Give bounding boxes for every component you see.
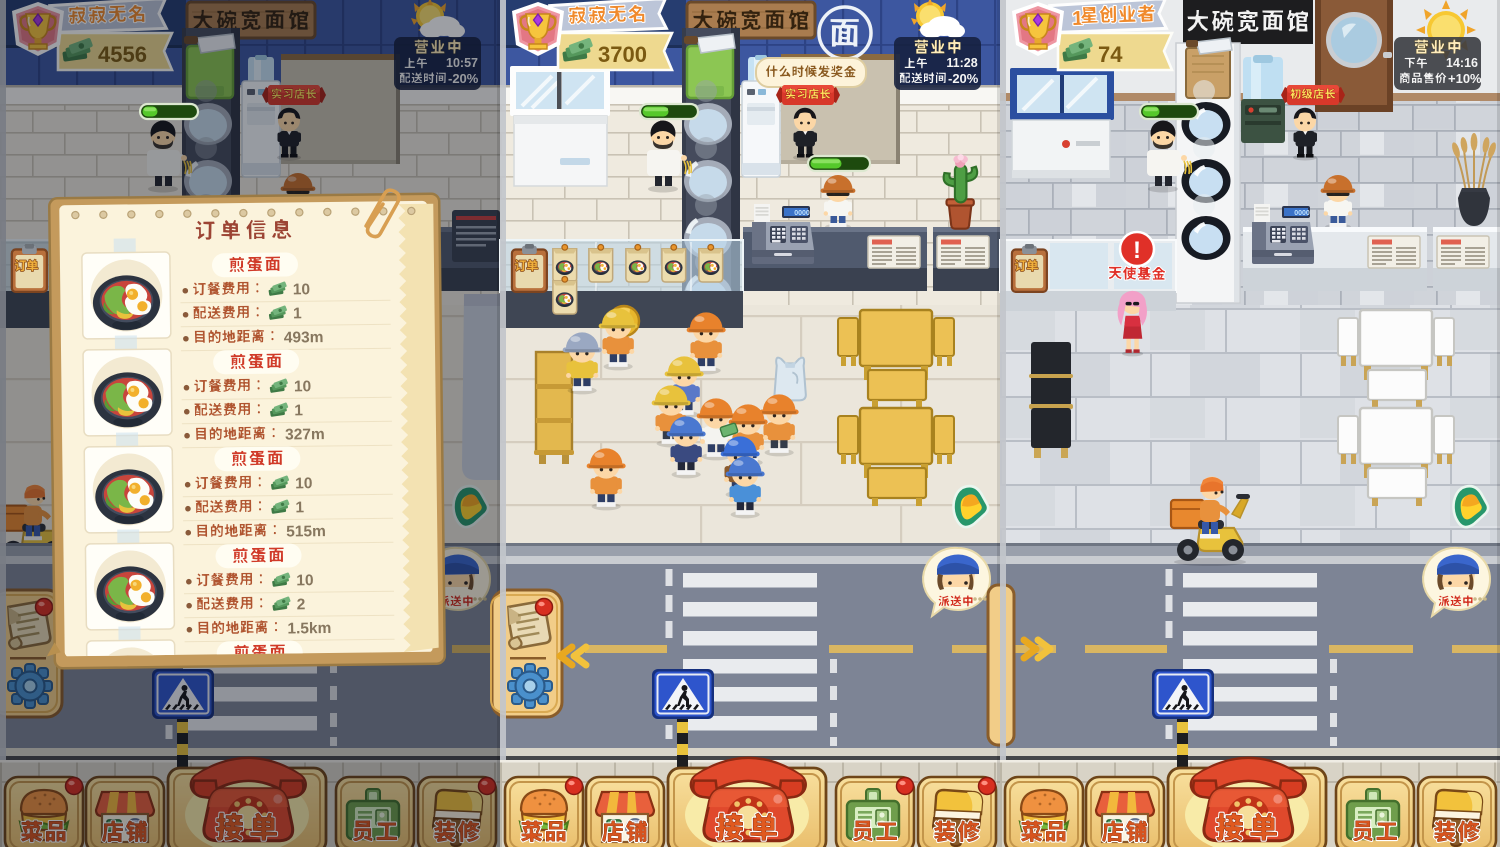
svg-text:10: 10 bbox=[295, 475, 312, 492]
svg-text:3700: 3700 bbox=[598, 42, 647, 67]
svg-text:327m: 327m bbox=[285, 426, 325, 443]
svg-text:1: 1 bbox=[293, 305, 302, 322]
svg-text:74: 74 bbox=[1098, 42, 1123, 67]
svg-text:10: 10 bbox=[296, 572, 313, 589]
svg-text:10: 10 bbox=[293, 281, 310, 298]
svg-text:1: 1 bbox=[294, 402, 303, 419]
svg-text:1.5km: 1.5km bbox=[287, 620, 331, 638]
svg-text:14:16: 14:16 bbox=[1446, 56, 1478, 70]
svg-text:515m: 515m bbox=[286, 523, 326, 540]
svg-text:1: 1 bbox=[295, 499, 304, 516]
svg-text:-20%: -20% bbox=[948, 71, 979, 86]
svg-text:!: ! bbox=[1133, 237, 1141, 264]
svg-text:493m: 493m bbox=[284, 329, 324, 346]
svg-text:+10%: +10% bbox=[1448, 71, 1482, 86]
svg-text:11:28: 11:28 bbox=[946, 56, 977, 70]
svg-text:10: 10 bbox=[294, 378, 311, 395]
svg-text:2: 2 bbox=[297, 596, 306, 613]
